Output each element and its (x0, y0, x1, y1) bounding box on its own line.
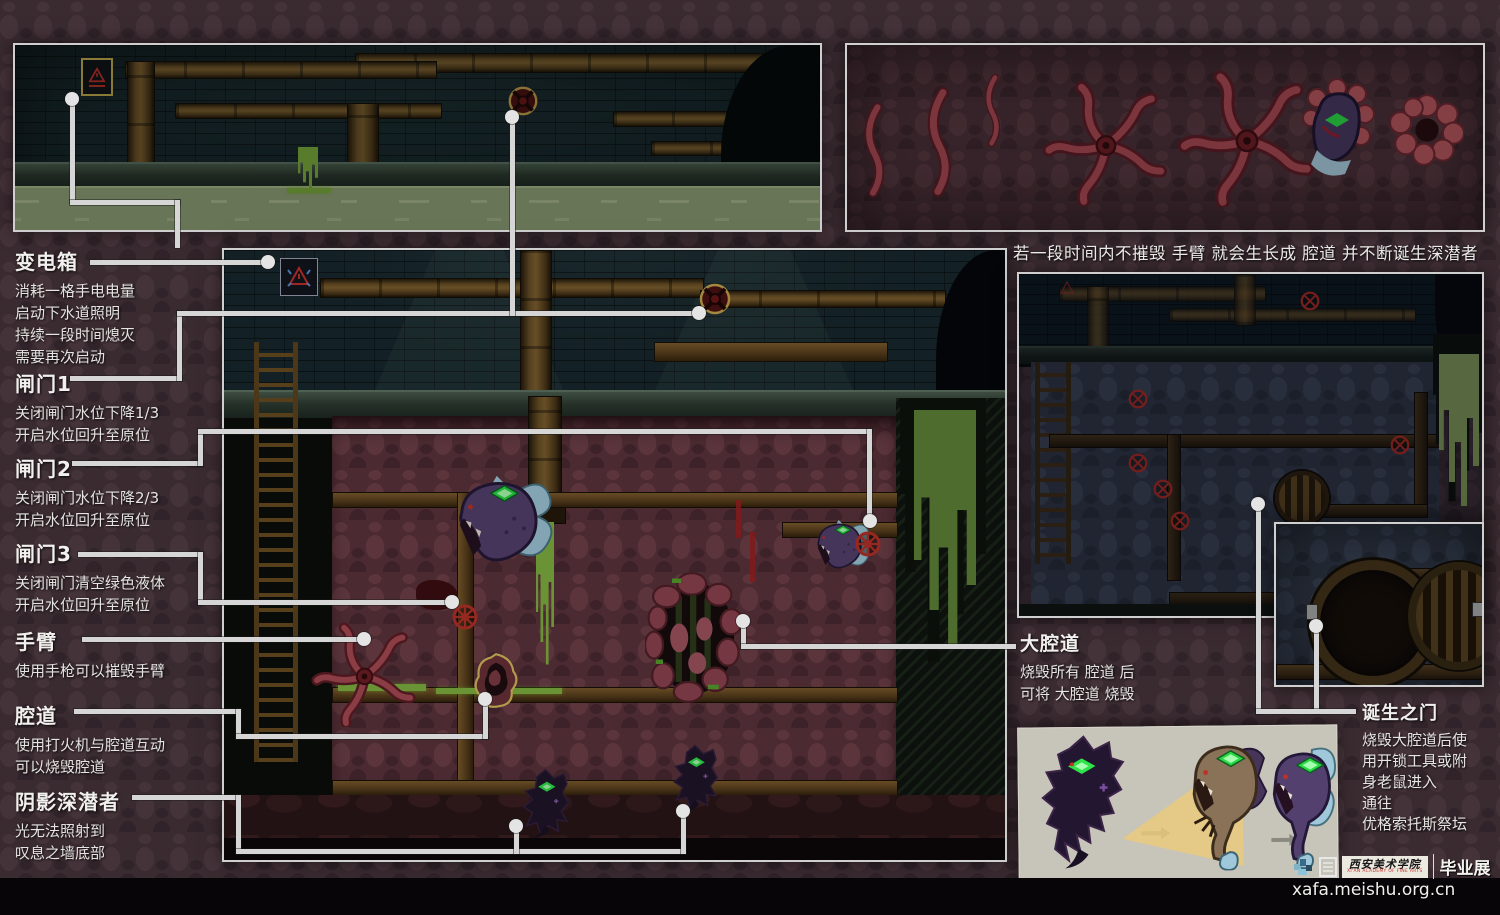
callout-line (236, 734, 488, 739)
wood-log (654, 342, 888, 362)
callout-dot (445, 595, 459, 609)
annotation-big-cavity: 大腔道 烧毁所有 腔道 后 可将 大腔道 烧毁 (1020, 629, 1135, 705)
annotation-title: 大腔道 (1020, 629, 1135, 656)
destroyed-valve-icon (1389, 434, 1411, 456)
callout-dot (65, 92, 79, 106)
annotation-gate3: 闸门3 关闭闸门清空绿色液体 开启水位回升至原位 (15, 538, 165, 616)
callout-dot (676, 804, 690, 818)
ladder (254, 342, 298, 762)
cavity-icon (470, 650, 522, 712)
shadow-diver-stage-icon (1034, 731, 1144, 876)
hatch-latch (1472, 602, 1483, 617)
wood-beam (1414, 392, 1428, 514)
callout-line (1256, 504, 1261, 714)
callout-dot (1251, 497, 1265, 511)
poster-canvas: 变电箱 消耗一格手电电量 启动下水道照明 持续一段时间熄灭 需要再次启动 闸门1… (0, 0, 1500, 915)
seal-logo-icon (1319, 857, 1337, 877)
callout-dot (863, 514, 877, 528)
watermark: 西安美术学院 XI'AN ACADEMY OF FINE ARTS 毕业展 xa… (1292, 854, 1491, 900)
big-cavity-icon (645, 564, 744, 710)
annotation-title: 诞生之门 (1362, 699, 1494, 725)
destroyed-valve-icon (1299, 290, 1321, 312)
pipe (347, 103, 379, 167)
panel-creature-reveal (1017, 724, 1339, 881)
callout-line (177, 311, 182, 381)
wood-beam (1167, 434, 1181, 581)
annotation-transformer: 变电箱 消耗一格手电电量 启动下水道照明 持续一段时间熄灭 需要再次启动 (15, 246, 135, 368)
callout-line (177, 311, 699, 316)
pipe (700, 290, 946, 308)
annotation-gate1: 闸门1 关闭闸门水位下降1/3 开启水位回升至原位 (15, 368, 159, 446)
callout-line (236, 849, 686, 854)
academy-name-en: XI'AN ACADEMY OF FINE ARTS (1347, 870, 1423, 875)
arm-star-icon (1049, 87, 1161, 201)
callout-dot (509, 819, 523, 833)
watermark-url: xafa.meishu.org.cn (1292, 880, 1491, 900)
callout-dot (357, 632, 371, 646)
callout-dot (478, 692, 492, 706)
transformer-warning-sign-icon (81, 58, 113, 96)
pipe (127, 61, 155, 175)
deep-diver-creature (442, 470, 567, 577)
callout-dot (692, 306, 706, 320)
annotation-title: 阴影深潜者 (15, 786, 120, 815)
callout-line (198, 429, 203, 466)
destroyed-valve-icon (1127, 388, 1149, 410)
ladder (1035, 362, 1071, 564)
slime-splash (287, 188, 331, 193)
panel-arm-growth (845, 43, 1485, 232)
wood-beam (332, 780, 898, 796)
pipe (1234, 274, 1256, 326)
callout-line (175, 200, 180, 248)
callout-dot (736, 614, 750, 628)
transformer-sign-icon (280, 258, 318, 296)
annotation-gate2: 闸门2 关闭闸门水位下降2/3 开启水位回升至原位 (15, 453, 159, 531)
pipe (1169, 308, 1416, 322)
destroyed-valve-icon (1152, 478, 1174, 500)
academy-logo: 西安美术学院 XI'AN ACADEMY OF FINE ARTS (1342, 856, 1428, 878)
wood-beam (332, 492, 898, 508)
annotation-title: 变电箱 (15, 246, 135, 275)
callout-line (681, 812, 686, 854)
callout-line (236, 795, 241, 854)
panel-birth-door-inset (1274, 522, 1484, 687)
pipe (125, 61, 437, 79)
flesh-wall (332, 416, 896, 796)
annotation-birth-gate: 诞生之门 烧毁大腔道后使 用开锁工具或附 身老鼠进入 通往 优格索托斯祭坛 (1362, 699, 1494, 835)
arm-worm-icon (869, 107, 879, 193)
annotation-arm: 手臂 使用手枪可以摧毁手臂 (15, 626, 165, 682)
destroyed-valve-icon (1169, 510, 1191, 532)
pixel-logo-icon (1292, 856, 1314, 878)
callout-line (198, 552, 203, 605)
callout-dot (1309, 619, 1323, 633)
annotation-title: 闸门3 (15, 538, 165, 567)
annotation-title: 腔道 (15, 700, 165, 729)
pipe (520, 250, 552, 398)
callout-line (70, 200, 180, 205)
pipe (175, 103, 442, 119)
annotation-shadow-diver: 阴影深潜者 光无法照射到 叹息之墙底部 (15, 786, 120, 864)
slime-column (1439, 354, 1479, 514)
pipe (1087, 286, 1109, 350)
callout-line (198, 600, 452, 605)
wood-beam (1319, 504, 1428, 518)
panel-main-level (222, 248, 1007, 862)
callout-line (867, 429, 872, 522)
callout-line (70, 99, 75, 203)
annotation-title: 手臂 (15, 626, 165, 655)
bottom-bar (0, 878, 1500, 915)
callout-line (198, 429, 872, 434)
emerging-diver-icon (1303, 79, 1374, 176)
growth-stages-art (847, 45, 1483, 230)
annotation-title: 闸门2 (15, 453, 159, 482)
callout-dot (261, 255, 275, 269)
callout-line (510, 117, 515, 316)
callout-line (1256, 709, 1356, 714)
green-water (15, 186, 821, 232)
hatch-latch (1306, 604, 1318, 620)
wood-beam (1049, 434, 1441, 448)
growth-note: 若一段时间内不摧毁 手臂 就会生长成 腔道 并不断诞生深潜者 (1013, 240, 1491, 264)
annotation-title: 闸门1 (15, 368, 159, 397)
annotation-cavity: 腔道 使用打火机与腔道互动 可以烧毁腔道 (15, 700, 165, 778)
callout-line (741, 644, 1016, 649)
destroyed-valve-icon (1127, 452, 1149, 474)
cavity-flower-icon (1390, 95, 1464, 165)
warning-sign-icon (1059, 280, 1075, 296)
callout-line (1314, 626, 1319, 714)
callout-dot (505, 110, 519, 124)
brick-wall (224, 250, 1005, 392)
exhibition-label: 毕业展 (1433, 854, 1491, 879)
birth-door-hatch-icon (1275, 471, 1329, 525)
callout-line (132, 795, 241, 800)
shadow-diver-creature (514, 768, 584, 840)
gate2-valve-icon (853, 529, 883, 559)
flesh-floor (224, 795, 1005, 840)
